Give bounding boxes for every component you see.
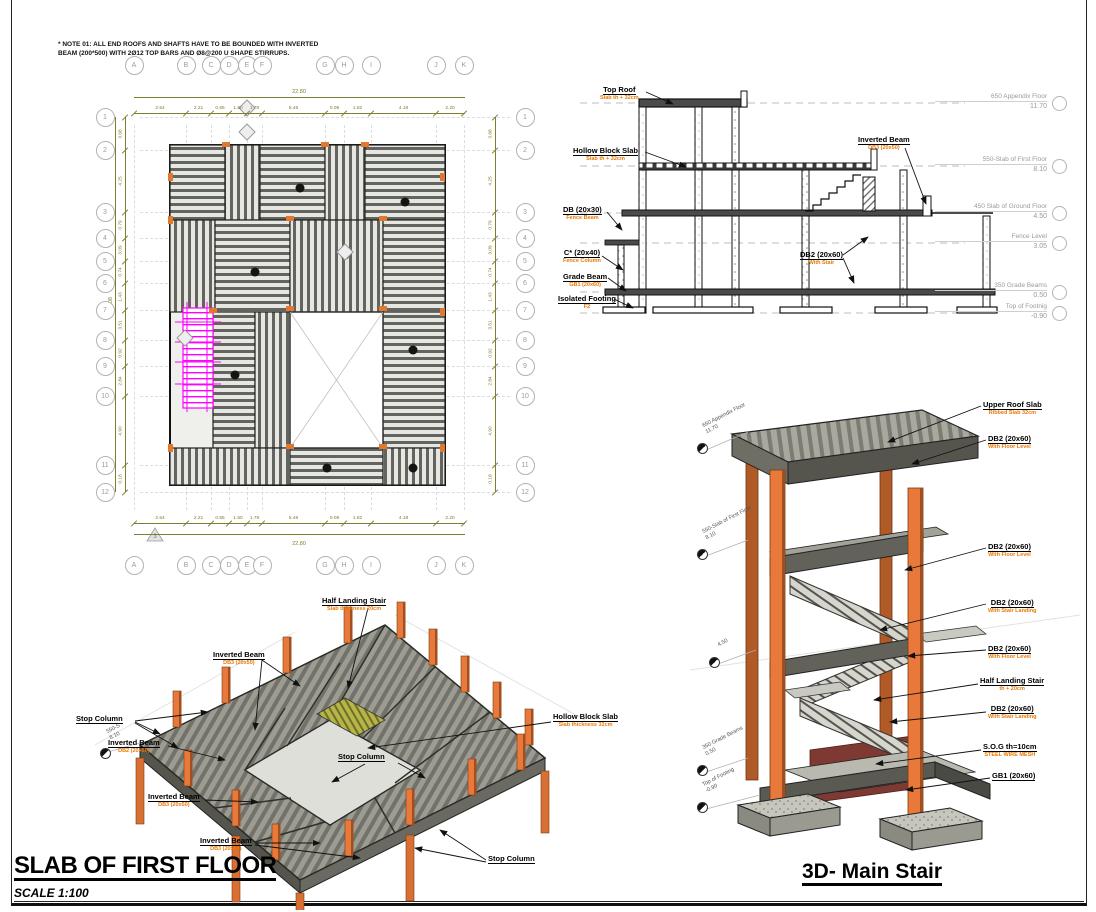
level-ground-floor: 450 Slab of Ground Floor4.50: [935, 203, 1047, 220]
level-marker-dot: [697, 549, 708, 560]
annotation-sub: Fence Beam: [566, 215, 598, 223]
annotation-title: GB1 (20x60): [992, 771, 1035, 781]
annotation-grade-beam: Grade BeamGB1 (20x60): [563, 272, 607, 290]
annotation-sub: Slab th + 32cm: [600, 95, 639, 103]
dimension-label: 2.54: [155, 516, 164, 521]
grid-bubble-col-H: H: [335, 56, 354, 75]
drawing-sheet: * NOTE 01: ALL END ROOFS AND SHAFTS HAVE…: [0, 0, 1096, 912]
dimension-label: 4.25: [119, 176, 124, 185]
dimension-label: 0.18: [489, 474, 494, 483]
grid-bubble-row-3: 3: [96, 203, 115, 222]
level-circle: [1052, 206, 1067, 221]
dimension-label: 3.51: [119, 320, 124, 329]
annotation-title: Isolated Footing: [558, 294, 616, 304]
annotation-title: Hollow Block Slab: [553, 712, 618, 722]
dimension-label: 1.82: [353, 516, 362, 521]
grid-bubble-col-I: I: [362, 56, 381, 75]
level-first-floor: 550-Slab of First Floor8.10: [935, 156, 1047, 173]
annotation-hollow-block-slab-3d: Hollow Block SlabSlab thickness 32cm: [553, 712, 618, 730]
dimension-label: 0.74: [119, 267, 124, 276]
annotation-db2-stair-landing-1: DB2 (20x60)With Stair Landing: [988, 598, 1037, 616]
dimension-label: 4.90: [119, 426, 124, 435]
grid-bubble-col-G: G: [316, 556, 335, 575]
level-marker-dot: [709, 657, 720, 668]
annotation-sog: S.O.G th=10cmSTEEL WIRE MESH: [983, 742, 1037, 760]
annotation-title: Inverted Beam: [213, 650, 265, 660]
annotation-sub: Slab thickness 32cm: [558, 722, 612, 730]
stair-3d-drawing: [690, 390, 1090, 860]
annotation-gb1: GB1 (20x60): [992, 771, 1035, 781]
grid-bubble-col-C: C: [202, 56, 221, 75]
grid-bubble-row-11: 11: [96, 456, 115, 475]
dimension-label: 4.18: [399, 516, 408, 521]
grid-bubble-row-2: 2: [96, 141, 115, 160]
level-marker-dot: [697, 765, 708, 776]
grid-bubble-row-6: 6: [516, 274, 535, 293]
annotation-db2-first-floor: DB2 (20x60)With Floor Level: [988, 542, 1031, 560]
dimension-label: 0.74: [489, 267, 494, 276]
grid-bubble-row-4: 4: [516, 229, 535, 248]
annotation-title: DB2 (20x60): [991, 598, 1034, 608]
dimension-line: [115, 117, 116, 492]
dimension-label: 0.79: [489, 220, 494, 229]
dimension-label: 1.50: [233, 106, 242, 111]
grid-bubble-col-J: J: [427, 556, 446, 575]
level-appendix-floor: 650 Appendix Floor11.70: [935, 93, 1047, 110]
annotation-sub: DB3 (20x50): [223, 660, 255, 668]
dimension-label: 5.48: [289, 516, 298, 521]
annotation-db-fence-beam: DB (20x30)Fence Beam: [563, 205, 602, 223]
annotation-title: Top Roof: [603, 85, 635, 95]
dimension-line: [125, 117, 126, 492]
dimension-label: 0.18: [119, 474, 124, 483]
grid-bubble-col-H: H: [335, 556, 354, 575]
annotation-sub: DB2 (20x60): [118, 748, 150, 756]
annotation-top-roof: Top RoofSlab th + 32cm: [600, 85, 639, 103]
annotation-title: Hollow Block Slab: [573, 146, 638, 156]
annotation-title: DB2 (20x60): [988, 434, 1031, 444]
annotation-title: DB (20x30): [563, 205, 602, 215]
annotation-title: Inverted Beam: [200, 836, 252, 846]
annotation-db2-floor-level: DB2 (20x60)With Floor Level: [988, 644, 1031, 662]
annotation-sub: DB3 (20x50): [868, 145, 900, 153]
annotation-upper-roof-slab: Upper Roof SlabRibbed Slab 32cm: [983, 400, 1042, 418]
annotation-sub: With Stair: [809, 260, 835, 268]
dimension-label: 0.79: [119, 220, 124, 229]
annotation-inverted-beam-1: Inverted BeamDB3 (20x50): [213, 650, 265, 668]
annotation-sub: With Floor Level: [988, 444, 1031, 452]
dimension-label: 1.82: [353, 106, 362, 111]
annotation-title: DB2 (20x60): [988, 644, 1031, 654]
slab-plan-view: 3 AABBCCDDEEFFGGHHIIJJKK1122334455667788…: [95, 40, 535, 590]
annotation-sub: DB3 (20x50): [158, 802, 190, 810]
annotation-title: Inverted Beam: [858, 135, 910, 145]
grid-bubble-col-A: A: [125, 56, 144, 75]
section-structure: [603, 91, 997, 313]
annotation-db2-stair-landing-2: DB2 (20x60)With Stair Landing: [988, 704, 1037, 722]
annotation-sub: STEEL WIRE MESH: [984, 752, 1035, 760]
dimension-line: [495, 117, 496, 492]
annotation-inverted-beam-3: Inverted BeamDB3 (20x50): [148, 792, 200, 810]
stair-3d-title: 3D- Main Stair: [802, 860, 942, 886]
annotation-fence-column: C* (20x40)Fence Column: [563, 248, 601, 266]
level-top-of-footing: Top of Footnig-0.90: [935, 303, 1047, 320]
dimension-label: 4.18: [399, 106, 408, 111]
grid-bubble-row-8: 8: [96, 331, 115, 350]
level-grade-beams: 350 Grade Beams0.50: [935, 282, 1047, 299]
grid-bubble-row-7: 7: [516, 301, 535, 320]
annotation-db2-with-stair: DB2 (20x60)With Stair: [800, 250, 843, 268]
level-marker-dot: [697, 443, 708, 454]
annotation-half-landing-stair-3d: Half Landing Stairth + 20cm: [980, 676, 1044, 694]
dimension-label: 2.21: [194, 106, 203, 111]
annotation-db2-roof: DB2 (20x60)With Floor Level: [988, 434, 1031, 452]
dimension-line: [134, 97, 465, 98]
grid-bubble-row-8: 8: [516, 331, 535, 350]
annotation-title: S.O.G th=10cm: [983, 742, 1037, 752]
dimension-label: 2.21: [194, 516, 203, 521]
dimension-label: 1.78: [250, 106, 259, 111]
grid-bubble-row-3: 3: [516, 203, 535, 222]
dimension-label: 5.48: [289, 106, 298, 111]
annotation-stop-column-2: Stop Column: [338, 752, 385, 762]
annotation-title: Stop Column: [488, 854, 535, 864]
grid-bubble-row-4: 4: [96, 229, 115, 248]
annotation-inverted-beam-2: Inverted BeamDB2 (20x60): [108, 738, 160, 756]
annotation-title: DB2 (20x60): [988, 542, 1031, 552]
annotation-sub: With Stair Landing: [988, 714, 1037, 722]
annotation-title: DB2 (20x60): [991, 704, 1034, 714]
dimension-label: 0.92: [119, 348, 124, 357]
dimension-label: 0.92: [489, 348, 494, 357]
dimension-label: 3.68: [119, 129, 124, 138]
grid-bubble-col-D: D: [220, 56, 239, 75]
annotation-isolated-footing: Isolated FootingF2: [558, 294, 616, 312]
grid-bubble-row-12: 12: [96, 483, 115, 502]
dimension-label: 2.54: [155, 106, 164, 111]
level-fence: Fence Level3.05: [935, 233, 1047, 250]
annotation-title: Half Landing Stair: [980, 676, 1044, 686]
annotation-inverted-beam-section: Inverted BeamDB3 (20x50): [858, 135, 910, 153]
annotation-sub: F2: [584, 304, 590, 312]
annotation-half-landing-stair: Half Landing StairSlab thickness 20cm: [322, 596, 386, 614]
grid-bubble-row-11: 11: [516, 456, 535, 475]
annotation-title: Grade Beam: [563, 272, 607, 282]
grid-bubble-col-B: B: [177, 56, 196, 75]
annotation-sub: With Stair Landing: [988, 608, 1037, 616]
total-width-label: 22.80: [292, 89, 306, 95]
dimension-label: 1.43: [119, 292, 124, 301]
annotation-sub: Slab thickness 20cm: [327, 606, 381, 614]
total-width-label: 22.80: [292, 541, 306, 547]
level-marker-dot: [697, 802, 708, 813]
dimension-tick: [492, 489, 498, 495]
dimension-label: 0.09: [330, 106, 339, 111]
grid-bubble-col-G: G: [316, 56, 335, 75]
grid-bubble-col-B: B: [177, 556, 196, 575]
grid-bubble-col-A: A: [125, 556, 144, 575]
dimension-label: 1.78: [250, 516, 259, 521]
dimension-label: 2.20: [445, 106, 454, 111]
grid-bubble-col-F: F: [253, 56, 272, 75]
grid-bubble-col-C: C: [202, 556, 221, 575]
grid-bubble-row-9: 9: [96, 357, 115, 376]
annotation-sub: With Floor Level: [988, 552, 1031, 560]
dimension-label: 3.09: [489, 245, 494, 254]
grid-bubble-row-9: 9: [516, 357, 535, 376]
level-circle: [1052, 306, 1067, 321]
annotation-stop-column-3: Stop Column: [488, 854, 535, 864]
annotation-title: DB2 (20x60): [800, 250, 843, 260]
annotation-hollow-block-slab: Hollow Block SlabSlab th + 32cm: [573, 146, 638, 164]
annotation-title: Inverted Beam: [148, 792, 200, 802]
grid-bubble-row-2: 2: [516, 141, 535, 160]
slab-plan-scale: SCALE 1:100: [14, 886, 89, 900]
level-circle: [1052, 285, 1067, 300]
level-marker-dot: [100, 748, 111, 759]
annotation-title: Upper Roof Slab: [983, 400, 1042, 410]
stair-3d-structure: [690, 410, 1080, 850]
grid-bubble-row-12: 12: [516, 483, 535, 502]
dimension-label: 0.65: [215, 516, 224, 521]
grid-bubble-row-7: 7: [96, 301, 115, 320]
grid-bubble-row-1: 1: [516, 108, 535, 127]
annotation-title: Stop Column: [338, 752, 385, 762]
grid-bubble-col-F: F: [253, 556, 272, 575]
dimension-label: 4.90: [489, 426, 494, 435]
dimension-label: 2.20: [445, 516, 454, 521]
grid-bubble-row-6: 6: [96, 274, 115, 293]
annotation-title: C* (20x40): [564, 248, 600, 258]
dimension-tick: [122, 489, 128, 495]
annotation-sub: Fence Column: [563, 258, 601, 266]
annotation-title: Stop Column: [76, 714, 123, 724]
grid-bubble-col-J: J: [427, 56, 446, 75]
grid-bubble-row-1: 1: [96, 108, 115, 127]
grid-bubble-col-K: K: [455, 556, 474, 575]
grid-bubble-row-5: 5: [516, 252, 535, 271]
grid-bubble-col-I: I: [362, 556, 381, 575]
annotation-sub: Ribbed Slab 32cm: [989, 410, 1036, 418]
grid-bubble-row-10: 10: [516, 387, 535, 406]
level-circle: [1052, 236, 1067, 251]
dimension-line: [134, 534, 465, 535]
level-circle: [1052, 159, 1067, 174]
dimension-label: 4.25: [489, 176, 494, 185]
dimension-tick: [461, 110, 467, 116]
grid-bubble-col-K: K: [455, 56, 474, 75]
annotation-sub: GB1 (20x60): [569, 282, 601, 290]
dimension-tick: [461, 520, 467, 526]
dimension-label: 2.84: [489, 376, 494, 385]
dimension-label: 3.68: [489, 129, 494, 138]
slab-plan-title: SLAB OF FIRST FLOOR: [14, 852, 276, 881]
annotation-title: Half Landing Stair: [322, 596, 386, 606]
grid-bubble-row-5: 5: [96, 252, 115, 271]
stair-3d-view: [690, 390, 1090, 860]
annotation-sub: th + 20cm: [999, 686, 1025, 694]
annotation-sub: With Floor Level: [988, 654, 1031, 662]
annotation-sub: Slab th + 32cm: [586, 156, 625, 164]
annotation-stop-column-1: Stop Column: [76, 714, 123, 724]
dimension-label: 2.84: [119, 376, 124, 385]
dimension-label: 3.09: [119, 245, 124, 254]
dimension-label: 3.51: [489, 320, 494, 329]
dimension-label: 0.09: [330, 516, 339, 521]
dimension-label: 0.65: [215, 106, 224, 111]
dimension-label: 1.50: [233, 516, 242, 521]
grid-bubble-col-D: D: [220, 556, 239, 575]
level-circle: [1052, 96, 1067, 111]
dimension-label: 1.43: [489, 292, 494, 301]
grid-bubble-row-10: 10: [96, 387, 115, 406]
